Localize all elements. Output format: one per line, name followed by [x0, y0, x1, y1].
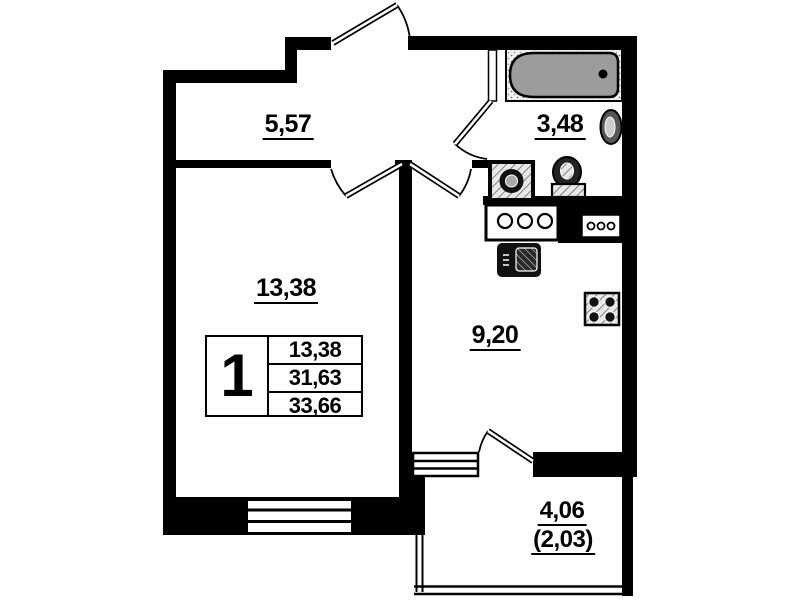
wall-bathroom-partition	[489, 50, 497, 101]
living-room-door	[331, 164, 402, 196]
bathtub-drain	[599, 70, 608, 79]
bathtub	[506, 49, 622, 101]
wash-basin	[601, 110, 622, 144]
wall-hall-bottom	[174, 160, 331, 168]
kitchen-sink-unit	[497, 243, 541, 277]
window-kitchen	[413, 453, 478, 476]
room-label-kitchen: 9,20	[470, 322, 521, 351]
wall-balcony-left-top	[412, 477, 425, 535]
kitchen-counter	[486, 205, 558, 240]
area-without-balcony: 31,63	[269, 363, 361, 391]
floor-plan-drawing	[0, 0, 799, 600]
balcony-door	[479, 431, 533, 461]
door-swing-icon	[397, 5, 410, 39]
floor-plan-page: 5,57 3,48 13,38 9,20 4,06 (2,03) 1 13,38…	[0, 0, 799, 600]
door-swing-icon	[459, 169, 471, 196]
cooktop	[585, 293, 619, 325]
wall-kitchen-bottom	[533, 452, 622, 477]
room-label-living-room: 13,38	[254, 275, 318, 304]
balcony-outline	[414, 535, 632, 594]
room-count: 1	[207, 337, 269, 415]
window-icon	[248, 501, 351, 532]
door-swing-icon	[455, 144, 487, 159]
room-label-hallway: 5,57	[263, 111, 314, 140]
window-living-room	[248, 501, 351, 532]
door-swing-icon	[331, 169, 346, 196]
area-living: 13,38	[269, 337, 361, 363]
room-label-bathroom: 3,48	[535, 111, 586, 140]
kitchen-door	[410, 164, 471, 196]
wall-top-a	[285, 37, 331, 50]
washing-machine	[490, 162, 533, 200]
entrance-door	[333, 5, 410, 43]
wall-top-b	[408, 36, 637, 50]
wall-interior	[399, 162, 412, 535]
room-label-balcony: 4,06	[538, 498, 587, 526]
wall-right	[622, 36, 637, 477]
area-total: 33,66	[269, 391, 361, 419]
room-label-balcony-reduced: (2,03)	[531, 527, 595, 555]
kitchen-counter-right	[558, 205, 622, 243]
wall-left	[163, 70, 176, 535]
window-icon	[413, 453, 478, 476]
door-swing-icon	[479, 431, 488, 452]
area-rows: 13,38 31,63 33,66	[269, 337, 361, 415]
apartment-info-box: 1 13,38 31,63 33,66	[205, 335, 363, 417]
wall-balcony-right	[622, 477, 633, 596]
bathroom-door	[455, 101, 491, 159]
wall-top-left	[163, 70, 297, 83]
toilet	[552, 157, 585, 197]
